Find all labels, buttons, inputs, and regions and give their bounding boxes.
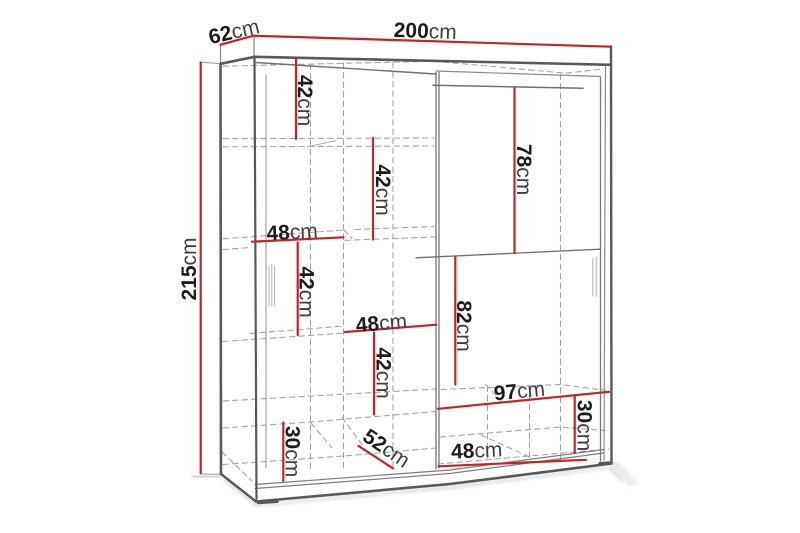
svg-text:48cm: 48cm (266, 220, 318, 246)
svg-text:42cm: 42cm (293, 75, 316, 126)
svg-text:97cm: 97cm (493, 378, 546, 406)
svg-text:48cm: 48cm (451, 438, 503, 463)
svg-text:42cm: 42cm (372, 347, 395, 398)
svg-text:42cm: 42cm (295, 266, 318, 317)
svg-text:200cm: 200cm (393, 19, 457, 44)
svg-text:78cm: 78cm (512, 144, 535, 195)
svg-text:82cm: 82cm (452, 300, 475, 351)
svg-text:215cm: 215cm (178, 237, 201, 300)
svg-text:30cm: 30cm (573, 400, 596, 451)
svg-text:30cm: 30cm (281, 426, 304, 477)
svg-text:42cm: 42cm (371, 164, 394, 215)
svg-text:48cm: 48cm (355, 310, 408, 337)
